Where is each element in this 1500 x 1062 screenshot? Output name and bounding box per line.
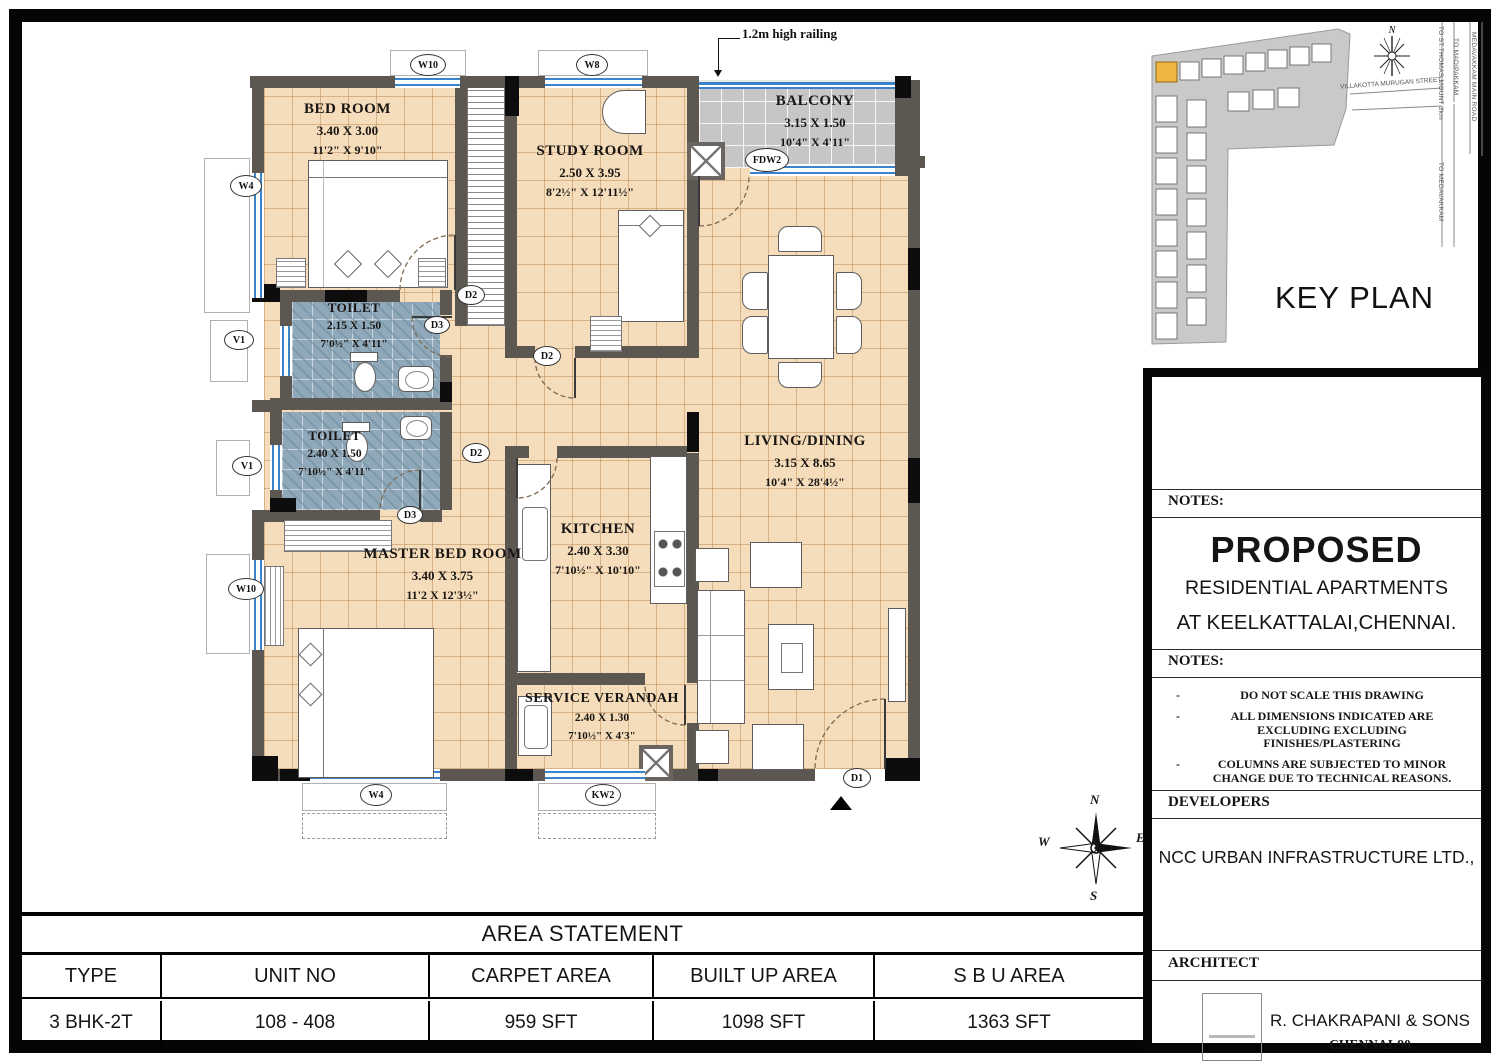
window-v1-a xyxy=(280,326,292,376)
marker-d3-a: D3 xyxy=(424,316,450,334)
marker-fdw2: FDW2 xyxy=(745,148,789,172)
architect-name: R. CHAKRAPANI & SONS xyxy=(1260,1011,1480,1031)
wash-basin xyxy=(602,90,646,134)
marker-w10-top: W10 xyxy=(410,54,446,76)
key-plan-compass-icon: N xyxy=(1374,25,1410,76)
entry-arrow-icon xyxy=(830,796,852,810)
leader-arrow-icon xyxy=(714,70,722,77)
key-plan-north: N xyxy=(1388,25,1397,36)
project-title: PROPOSED xyxy=(1152,529,1481,571)
marker-d3-b: D3 xyxy=(397,506,423,524)
compass-rose: N E S W xyxy=(1052,804,1140,892)
marker-w8: W8 xyxy=(576,54,608,76)
room-label-living: LIVING/DINING 3.15 X 8.65 10'4" X 28'4½" xyxy=(705,430,905,492)
tv-unit xyxy=(888,608,906,702)
chair xyxy=(742,316,768,354)
notes-label-1: NOTES: xyxy=(1168,493,1224,510)
dresser xyxy=(264,566,284,646)
side-table xyxy=(695,730,729,764)
note-item: -COLUMNS ARE SUBJECTED TO MINOR CHANGE D… xyxy=(1170,758,1470,786)
chair xyxy=(836,316,862,354)
col-header-built-up-area: BUILT UP AREA xyxy=(654,955,875,999)
marker-w10-left: W10 xyxy=(228,578,264,600)
marker-v1-a: V1 xyxy=(224,330,254,350)
marker-v1-b: V1 xyxy=(232,456,262,476)
note-item: -ALL DIMENSIONS INDICATED ARE EXCLUDING … xyxy=(1170,710,1470,751)
value-unit-no: 108 - 408 xyxy=(162,1001,430,1044)
basin xyxy=(400,416,432,440)
wc-tank xyxy=(350,352,378,362)
col-header-carpet-area: CARPET AREA xyxy=(430,955,654,999)
architect-city: CHENNAI-90 xyxy=(1260,1037,1480,1053)
key-plan: N VILLAKOTTA MURUGAN STREET TO ST.THOMAS… xyxy=(1140,12,1490,360)
chair xyxy=(742,272,768,310)
room-label-toilet1: TOILET 2.15 X 1.50 7'0½" X 4'11" xyxy=(295,298,413,353)
value-sbu-area: 1363 SFT xyxy=(875,1001,1143,1044)
col-header-type: TYPE xyxy=(22,955,162,999)
value-type: 3 BHK-2T xyxy=(22,1001,162,1044)
architect-stamp xyxy=(1202,993,1262,1061)
marker-w4-left: W4 xyxy=(230,175,262,197)
project-subtitle: RESIDENTIAL APARTMENTS xyxy=(1152,577,1481,600)
compass-n: N xyxy=(1090,792,1099,808)
balcony-railing xyxy=(699,80,895,89)
value-carpet-area: 959 SFT xyxy=(430,1001,654,1044)
area-statement-table: AREA STATEMENT TYPE UNIT NO CARPET AREA … xyxy=(22,912,1143,1040)
marker-w4-bottom: W4 xyxy=(360,784,392,806)
room-label-toilet2: TOILET 2.40 X 1.50 7'10½" X 4'11" xyxy=(272,426,397,481)
marker-d2-c: D2 xyxy=(462,443,490,463)
marker-d1: D1 xyxy=(843,768,871,788)
chair xyxy=(778,362,822,388)
room-label-verandah: SERVICE VERANDAH 2.40 X 1.30 7'10½" X 4'… xyxy=(512,688,692,745)
developers-label: DEVELOPERS xyxy=(1168,794,1270,811)
notes-list: -DO NOT SCALE THIS DRAWING -ALL DIMENSIO… xyxy=(1170,689,1470,793)
railing-note: 1.2m high railing xyxy=(742,26,892,42)
road-label-2: TO MADIPAKKAM xyxy=(1452,38,1459,108)
value-built-up-area: 1098 SFT xyxy=(654,1001,875,1044)
side-table xyxy=(695,548,729,582)
armchair xyxy=(752,724,804,770)
drawing-sheet: BED ROOM 3.40 X 3.00 11'2" X 9'10" STUDY… xyxy=(0,0,1500,1062)
window-kw2 xyxy=(545,769,645,781)
project-location: AT KEELKATTALAI,CHENNAI. xyxy=(1152,611,1481,635)
floor-plan: BED ROOM 3.40 X 3.00 11'2" X 9'10" STUDY… xyxy=(250,68,925,793)
dining-table xyxy=(768,255,834,359)
architect-label: ARCHITECT xyxy=(1168,955,1259,972)
marker-d2-b: D2 xyxy=(533,346,561,366)
room-label-bedroom: BED ROOM 3.40 X 3.00 11'2" X 9'10" xyxy=(265,98,430,160)
window-w10-left xyxy=(252,560,264,650)
road-label-3: MEDAVAKKAM MAIN ROAD xyxy=(1470,32,1477,152)
sofa xyxy=(697,590,745,724)
coffee-table xyxy=(768,624,814,690)
road-label-4: TO MEDAVAKKAM xyxy=(1437,162,1444,247)
compass-s: S xyxy=(1090,888,1097,904)
chair xyxy=(778,226,822,252)
room-label-master: MASTER BED ROOM 3.40 X 3.75 11'2 X 12'3½… xyxy=(335,543,550,605)
area-statement-title: AREA STATEMENT xyxy=(22,916,1143,955)
armchair xyxy=(750,542,802,588)
room-label-kitchen: KITCHEN 2.40 X 3.30 7'10½" X 10'10" xyxy=(533,518,663,580)
window-w10-top xyxy=(395,76,460,88)
col-header-sbu-area: S B U AREA xyxy=(875,955,1143,999)
marker-d2-a: D2 xyxy=(457,285,485,305)
window-w8 xyxy=(545,76,642,88)
road-label-1: TO ST.THOMAS MOUNT 2km xyxy=(1437,26,1444,106)
room-label-balcony: BALCONY 3.15 X 1.50 10'4" X 4'11" xyxy=(720,90,910,152)
title-block: NOTES: PROPOSED RESIDENTIAL APARTMENTS A… xyxy=(1143,368,1490,1052)
col-header-unit-no: UNIT NO xyxy=(162,955,430,999)
wc-bowl xyxy=(354,362,376,392)
compass-w: W xyxy=(1038,834,1050,850)
notes-label-2: NOTES: xyxy=(1168,653,1224,670)
note-item: -DO NOT SCALE THIS DRAWING xyxy=(1170,689,1470,703)
chair xyxy=(836,272,862,310)
marker-kw2: KW2 xyxy=(585,784,621,806)
developer-name: NCC URBAN INFRASTRUCTURE LTD., xyxy=(1152,847,1481,868)
highlighted-unit xyxy=(1156,62,1177,82)
compass-star-icon xyxy=(1052,804,1140,892)
room-label-study: STUDY ROOM 2.50 X 3.95 8'2½" X 12'11½" xyxy=(505,140,675,202)
key-plan-title: KEY PLAN xyxy=(1275,280,1475,316)
basin xyxy=(398,366,434,392)
